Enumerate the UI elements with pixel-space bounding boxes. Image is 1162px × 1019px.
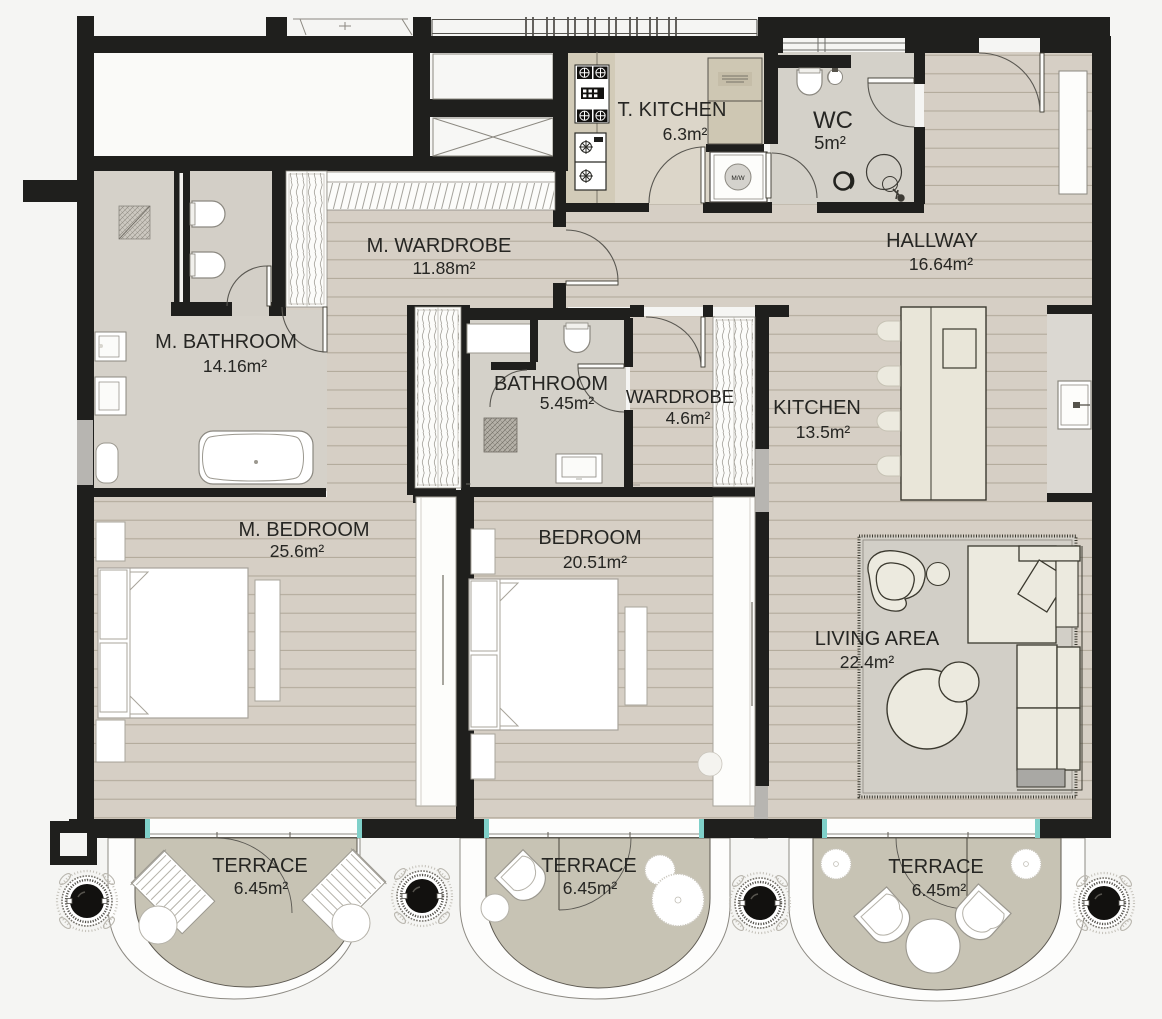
svg-text:6.45m²: 6.45m² bbox=[234, 878, 289, 898]
svg-text:14.16m²: 14.16m² bbox=[203, 356, 267, 376]
svg-text:TERRACE: TERRACE bbox=[541, 855, 637, 877]
svg-text:5.45m²: 5.45m² bbox=[540, 393, 595, 413]
svg-text:25.6m²: 25.6m² bbox=[270, 541, 325, 561]
svg-text:20.51m²: 20.51m² bbox=[563, 552, 627, 572]
svg-text:BATHROOM: BATHROOM bbox=[494, 373, 608, 395]
svg-text:KITCHEN: KITCHEN bbox=[773, 397, 861, 419]
svg-text:BEDROOM: BEDROOM bbox=[538, 527, 641, 549]
svg-text:LIVING AREA: LIVING AREA bbox=[815, 628, 940, 650]
svg-text:11.88m²: 11.88m² bbox=[413, 258, 476, 278]
svg-text:M. BATHROOM: M. BATHROOM bbox=[155, 331, 297, 353]
svg-text:16.64m²: 16.64m² bbox=[909, 254, 973, 274]
svg-text:M. WARDROBE: M. WARDROBE bbox=[367, 235, 512, 257]
svg-text:4.6m²: 4.6m² bbox=[666, 408, 711, 428]
svg-text:HALLWAY: HALLWAY bbox=[886, 230, 978, 252]
svg-text:5m²: 5m² bbox=[814, 132, 846, 153]
svg-text:WC: WC bbox=[813, 107, 853, 134]
svg-text:TERRACE: TERRACE bbox=[888, 856, 984, 878]
svg-text:T. KITCHEN: T. KITCHEN bbox=[618, 99, 727, 121]
svg-text:M. BEDROOM: M. BEDROOM bbox=[238, 519, 369, 541]
svg-text:6.3m²: 6.3m² bbox=[663, 124, 708, 144]
svg-text:6.45m²: 6.45m² bbox=[912, 880, 967, 900]
svg-text:TERRACE: TERRACE bbox=[212, 855, 308, 877]
svg-text:22.4m²: 22.4m² bbox=[840, 652, 895, 672]
svg-text:M/W: M/W bbox=[731, 175, 745, 182]
svg-text:13.5m²: 13.5m² bbox=[796, 422, 851, 442]
svg-text:WARDROBE: WARDROBE bbox=[626, 386, 734, 407]
svg-text:6.45m²: 6.45m² bbox=[563, 878, 618, 898]
